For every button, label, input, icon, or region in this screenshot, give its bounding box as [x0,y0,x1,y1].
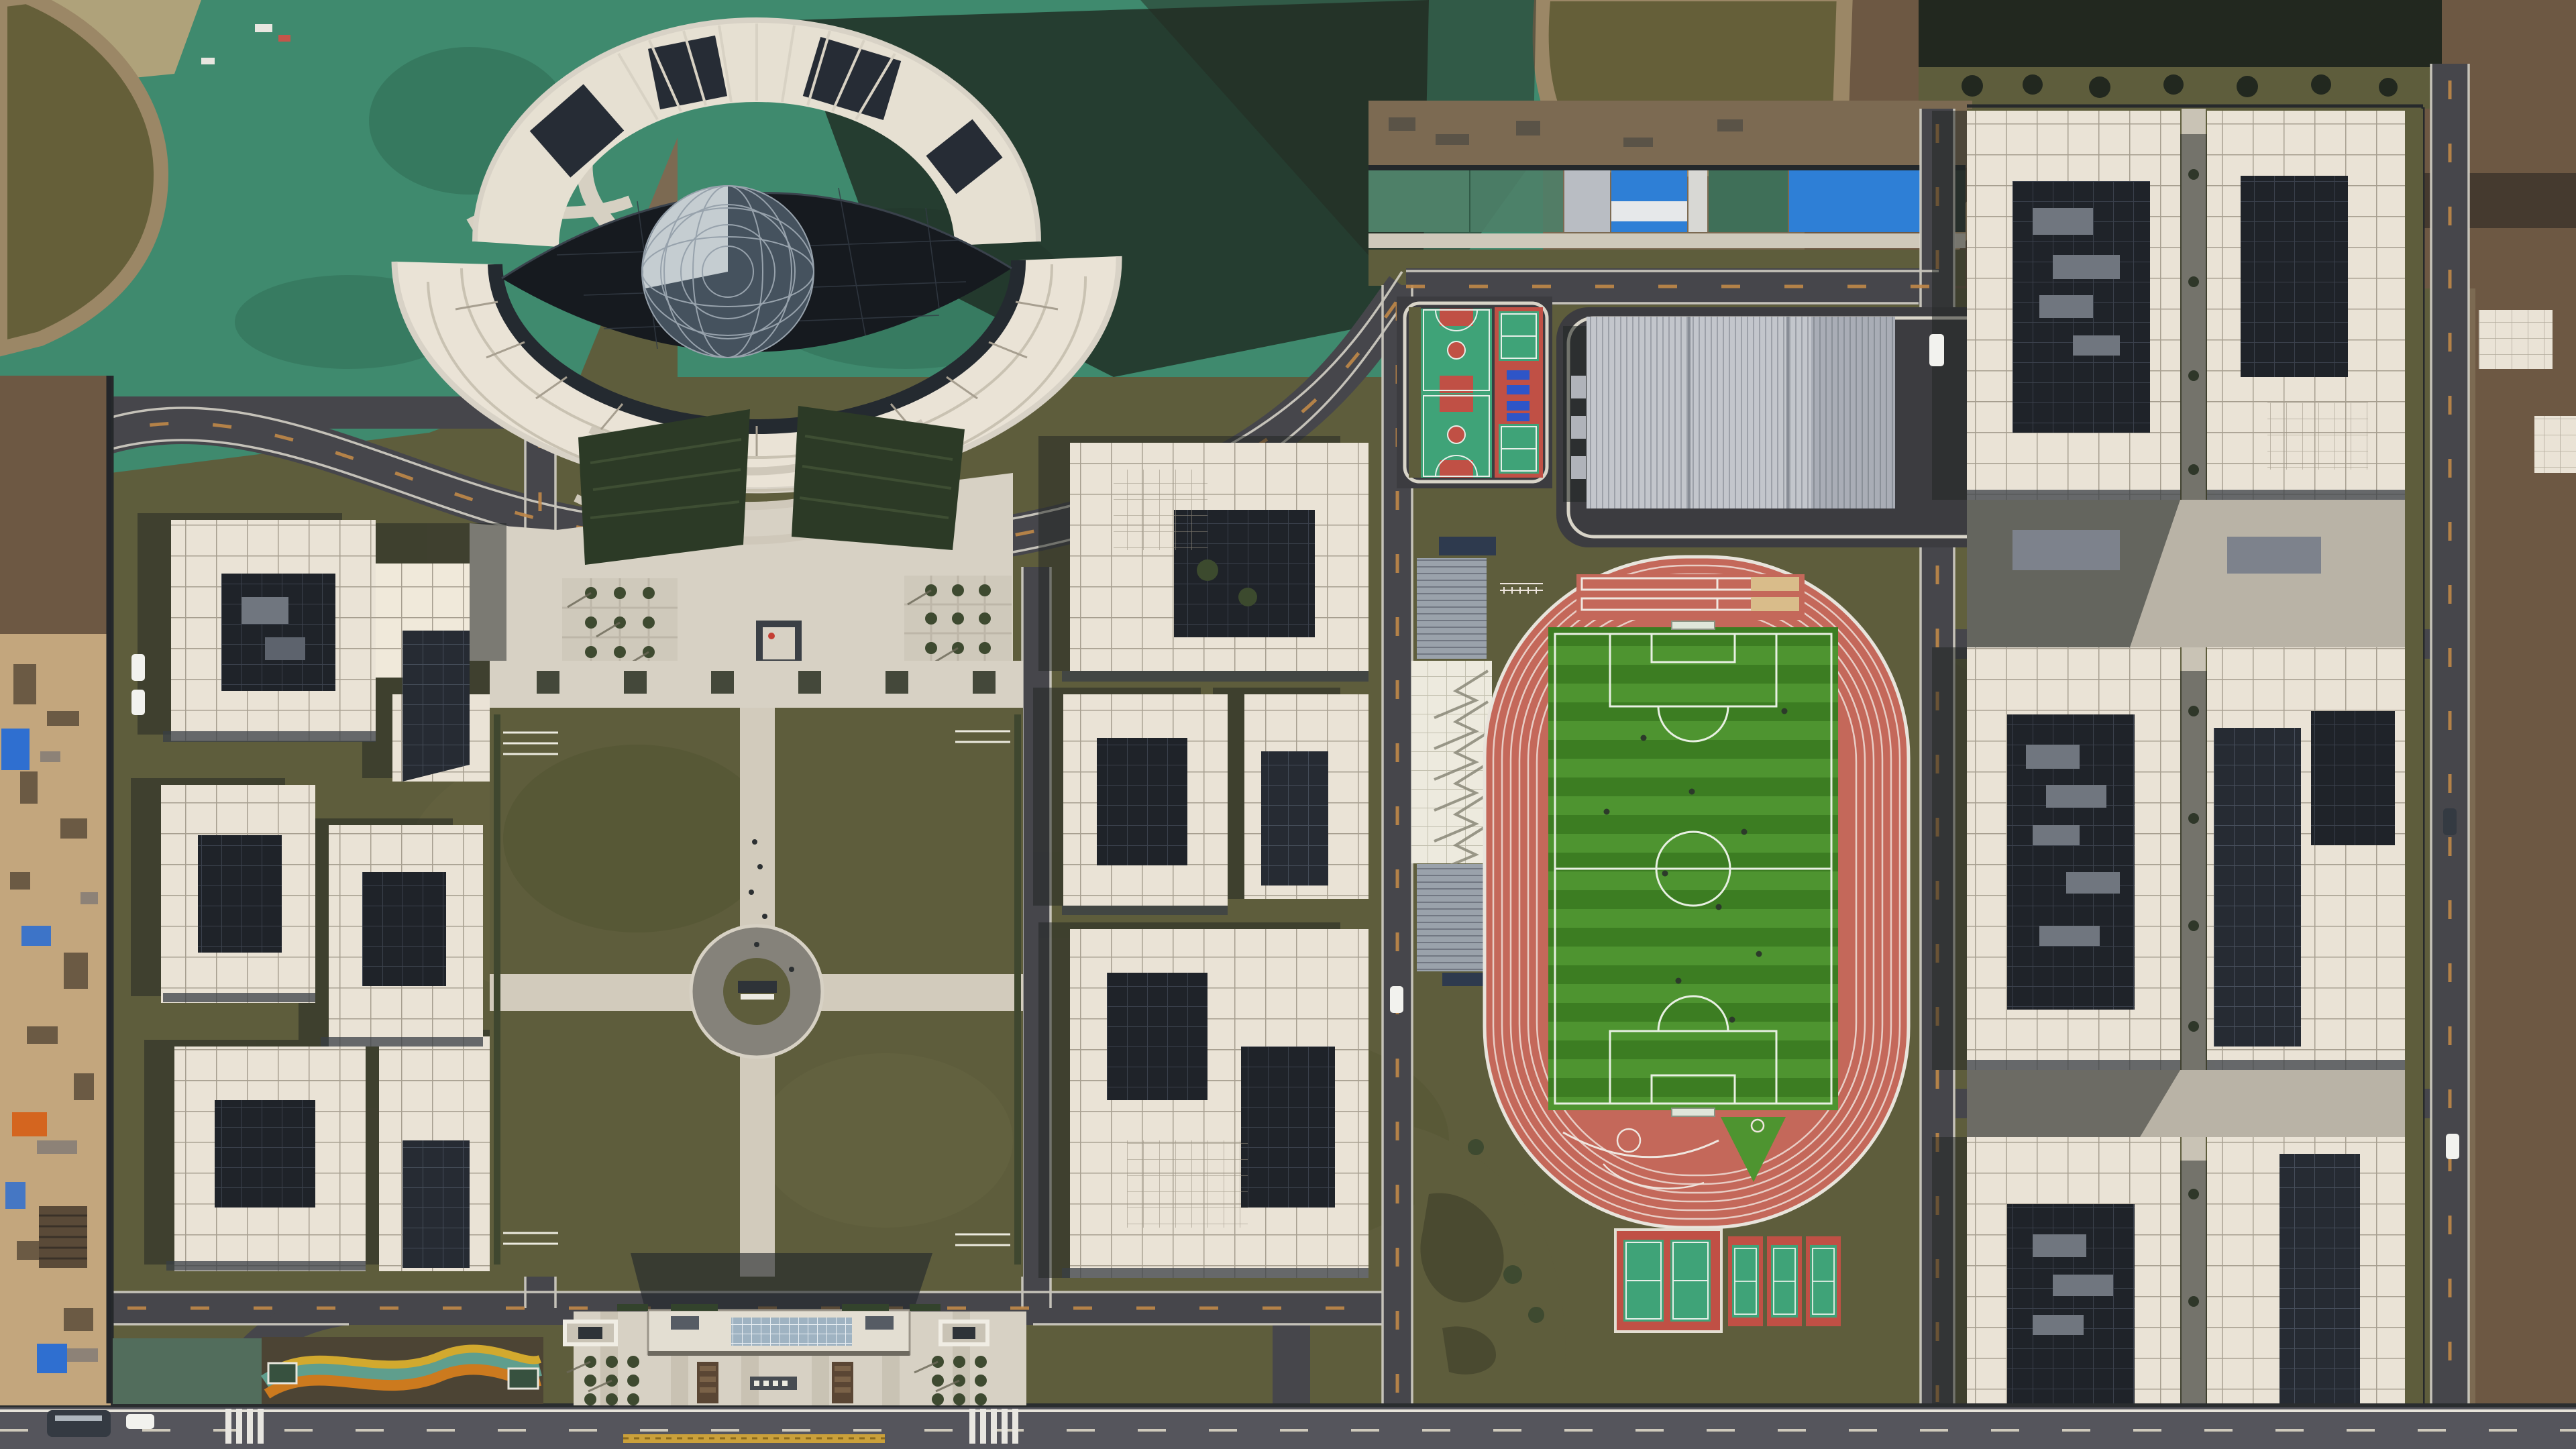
basketball-courts [1421,309,1492,478]
aerial-photo: Aerial view of a newly built school camp… [0,0,2576,1449]
volleyball-badminton-courts [1615,1230,1841,1332]
construction-staging-yard [0,376,111,1405]
soccer-pitch [1548,621,1838,1116]
center-building-cluster [1033,436,1368,1278]
central-quad [490,661,1023,1277]
tennis-and-table-tennis [1495,307,1543,478]
campus-aerial-scene [0,0,2576,1449]
construction-office-strip [1368,101,1972,286]
left-building-cluster [131,513,537,1271]
